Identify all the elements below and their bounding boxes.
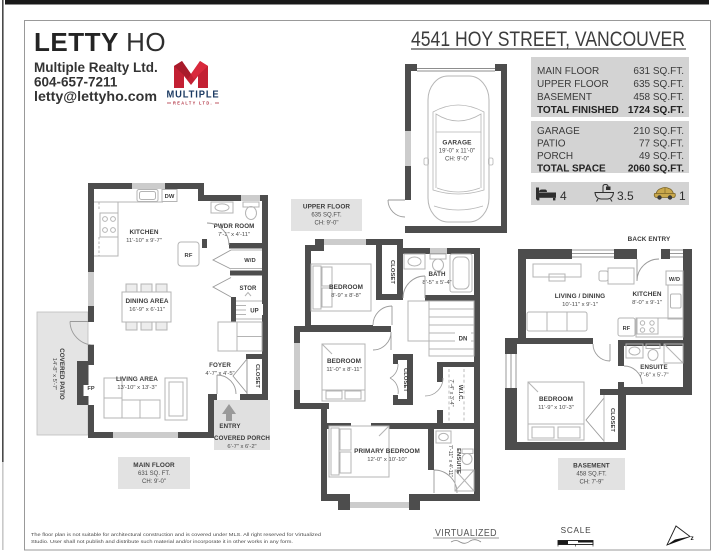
svg-text:W.I.C.: W.I.C. — [457, 385, 463, 402]
svg-text:4: 4 — [560, 189, 567, 203]
svg-text:BACK ENTRY: BACK ENTRY — [628, 236, 671, 243]
svg-text:W/D: W/D — [669, 277, 680, 283]
svg-text:MULTIPLE: MULTIPLE — [167, 89, 220, 101]
svg-text:CLOSET: CLOSET — [609, 408, 615, 432]
svg-text:3.5: 3.5 — [617, 189, 634, 203]
svg-text:CH: 9'-0": CH: 9'-0" — [315, 221, 339, 227]
svg-text:635 SQ.FT.: 635 SQ.FT. — [633, 79, 684, 90]
svg-text:VIRTUALIZED: VIRTUALIZED — [435, 527, 497, 539]
svg-text:604-657-7211: 604-657-7211 — [34, 75, 118, 90]
svg-text:458 SQ.FT.: 458 SQ.FT. — [576, 472, 607, 478]
svg-text:DN: DN — [459, 337, 468, 343]
svg-text:CLOSET: CLOSET — [254, 364, 260, 388]
svg-text:11'-10" x 9'-7": 11'-10" x 9'-7" — [126, 238, 162, 244]
svg-text:RF: RF — [623, 326, 631, 332]
svg-text:77 SQ.FT.: 77 SQ.FT. — [639, 139, 684, 150]
svg-text:KITCHEN: KITCHEN — [129, 229, 158, 236]
svg-text:6'-7" x 6'-2": 6'-7" x 6'-2" — [227, 444, 256, 450]
svg-text:CH: 9'-0": CH: 9'-0" — [142, 479, 166, 485]
svg-text:Multiple Realty Ltd.: Multiple Realty Ltd. — [34, 60, 158, 75]
svg-text:KITCHEN: KITCHEN — [632, 291, 661, 298]
svg-text:ENSUITE: ENSUITE — [640, 364, 668, 371]
svg-text:UPPER FLOOR: UPPER FLOOR — [303, 204, 351, 211]
svg-text:COVERED PATIO: COVERED PATIO — [58, 348, 65, 400]
svg-text:letty@lettyho.com: letty@lettyho.com — [34, 89, 157, 104]
svg-text:49 SQ.FT.: 49 SQ.FT. — [639, 151, 684, 162]
svg-text:CLOSET: CLOSET — [402, 368, 408, 392]
svg-text:458 SQ.FT.: 458 SQ.FT. — [633, 92, 684, 103]
svg-text:UPPER FLOOR: UPPER FLOOR — [537, 79, 609, 90]
svg-text:BASEMENT: BASEMENT — [573, 463, 610, 470]
svg-text:BEDROOM: BEDROOM — [327, 358, 361, 365]
svg-text:DINING AREA: DINING AREA — [125, 298, 168, 305]
svg-text:8'-9" x 8'-8": 8'-9" x 8'-8" — [331, 293, 361, 299]
svg-text:8'-5" x 5'-4": 8'-5" x 5'-4" — [422, 280, 451, 286]
svg-text:631 SQ. FT.: 631 SQ. FT. — [138, 471, 170, 477]
svg-text:RF: RF — [185, 253, 193, 259]
svg-text:16'-9" x 6'-11": 16'-9" x 6'-11" — [129, 307, 165, 313]
svg-text:19'-0" x 11'-0": 19'-0" x 11'-0" — [439, 149, 475, 155]
svg-text:COVERED PORCH: COVERED PORCH — [214, 435, 270, 442]
svg-text:ENTRY: ENTRY — [219, 423, 241, 430]
svg-text:631 SQ.FT.: 631 SQ.FT. — [633, 66, 684, 77]
svg-text:7'-11" x 4'-11": 7'-11" x 4'-11" — [447, 445, 453, 477]
svg-text:12'-0" x 10'-10": 12'-0" x 10'-10" — [367, 457, 407, 463]
svg-text:CH: 9'-0": CH: 9'-0" — [445, 157, 469, 163]
svg-text:ENSUITE: ENSUITE — [455, 448, 461, 474]
svg-text:MAIN FLOOR: MAIN FLOOR — [537, 66, 599, 77]
svg-text:GARAGE: GARAGE — [442, 140, 472, 147]
svg-text:REALTY LTD.: REALTY LTD. — [173, 101, 213, 106]
svg-text:13'-10" x 13'-3": 13'-10" x 13'-3" — [117, 385, 157, 391]
svg-text:1724 SQ.FT.: 1724 SQ.FT. — [628, 105, 684, 116]
svg-text:BASEMENT: BASEMENT — [537, 92, 592, 103]
svg-text:GARAGE: GARAGE — [537, 126, 580, 137]
svg-text:TOTAL FINISHED: TOTAL FINISHED — [537, 105, 619, 116]
svg-text:FP: FP — [87, 386, 95, 392]
svg-text:PORCH: PORCH — [537, 151, 573, 162]
svg-text:2060 SQ.FT.: 2060 SQ.FT. — [628, 164, 684, 175]
svg-text:4541 HOY STREET, VANCOUVER: 4541 HOY STREET, VANCOUVER — [411, 28, 685, 51]
svg-text:PRIMARY BEDROOM: PRIMARY BEDROOM — [354, 448, 420, 455]
svg-text:BEDROOM: BEDROOM — [329, 284, 363, 291]
svg-text:SCALE: SCALE — [561, 526, 592, 535]
svg-text:LETTY HO: LETTY HO — [34, 27, 166, 57]
svg-text:BEDROOM: BEDROOM — [539, 396, 573, 403]
svg-text:7'-1" x 4'-11": 7'-1" x 4'-11" — [218, 232, 250, 238]
svg-text:FOYER: FOYER — [209, 362, 231, 369]
svg-text:210 SQ.FT.: 210 SQ.FT. — [633, 126, 684, 137]
svg-text:CLOSET: CLOSET — [389, 260, 395, 284]
svg-text:CH: 7'-9": CH: 7'-9" — [580, 480, 604, 486]
svg-text:Studio. User shall not publish: Studio. User shall not publish and distr… — [31, 539, 293, 545]
svg-text:MAIN FLOOR: MAIN FLOOR — [133, 462, 175, 469]
svg-text:BATH: BATH — [428, 271, 446, 278]
svg-text:UP: UP — [250, 309, 259, 315]
svg-text:TOTAL SPACE: TOTAL SPACE — [537, 164, 606, 175]
svg-text:1: 1 — [679, 189, 686, 203]
svg-text:8'-0" x 9'-1": 8'-0" x 9'-1" — [632, 300, 662, 306]
svg-text:DW: DW — [165, 194, 175, 200]
svg-text:PATIO: PATIO — [537, 139, 566, 150]
svg-text:7'-6" x 5'-7": 7'-6" x 5'-7" — [639, 373, 668, 379]
svg-text:LIVING / DINING: LIVING / DINING — [555, 293, 606, 300]
svg-text:W/D: W/D — [244, 258, 256, 264]
svg-text:7'-4" x 3'-4": 7'-4" x 3'-4" — [448, 379, 454, 406]
svg-text:10'-11" x 9'-1": 10'-11" x 9'-1" — [562, 302, 598, 308]
svg-text:The floor plan is not suitable: The floor plan is not suitable for archi… — [31, 532, 321, 538]
svg-text:STOR: STOR — [240, 286, 258, 292]
svg-text:14'-8" x 5'-7": 14'-8" x 5'-7" — [51, 358, 57, 390]
svg-text:4'-7" x 4'-5": 4'-7" x 4'-5" — [205, 371, 234, 377]
svg-text:LIVING AREA: LIVING AREA — [116, 376, 158, 383]
svg-text:635 SQ.FT.: 635 SQ.FT. — [311, 213, 342, 219]
svg-text:11'-0" x 8'-11": 11'-0" x 8'-11" — [326, 367, 361, 373]
svg-text:11'-9" x 10'-3": 11'-9" x 10'-3" — [538, 405, 574, 411]
